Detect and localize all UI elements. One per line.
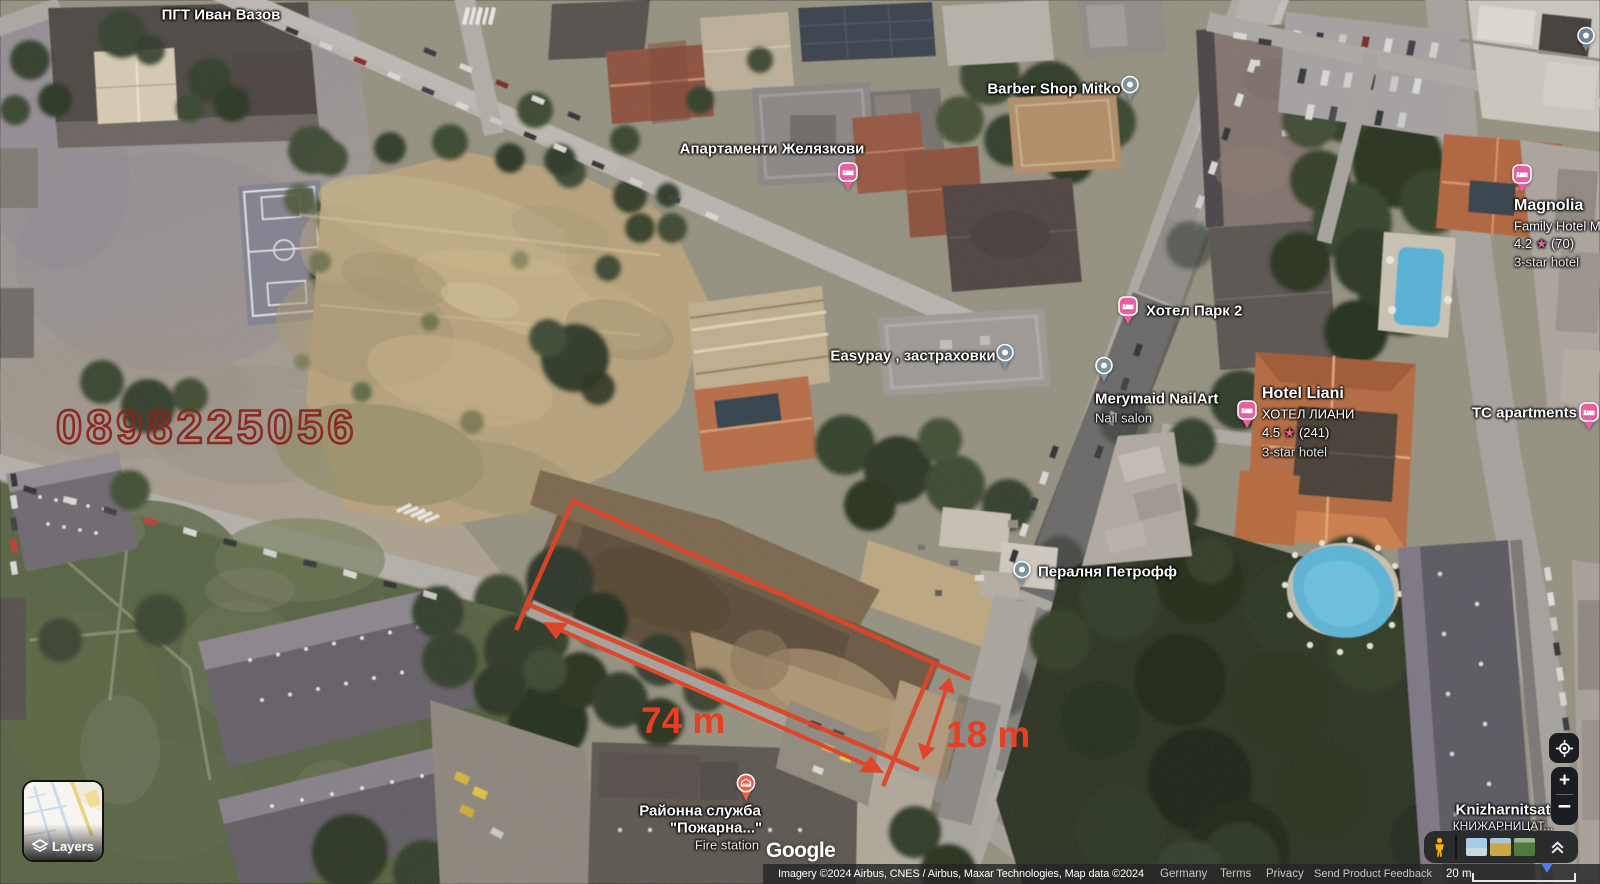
svg-text:0898225056: 0898225056 <box>56 400 357 453</box>
svg-text:74 m: 74 m <box>641 700 725 741</box>
svg-text:18 m: 18 m <box>946 714 1030 755</box>
